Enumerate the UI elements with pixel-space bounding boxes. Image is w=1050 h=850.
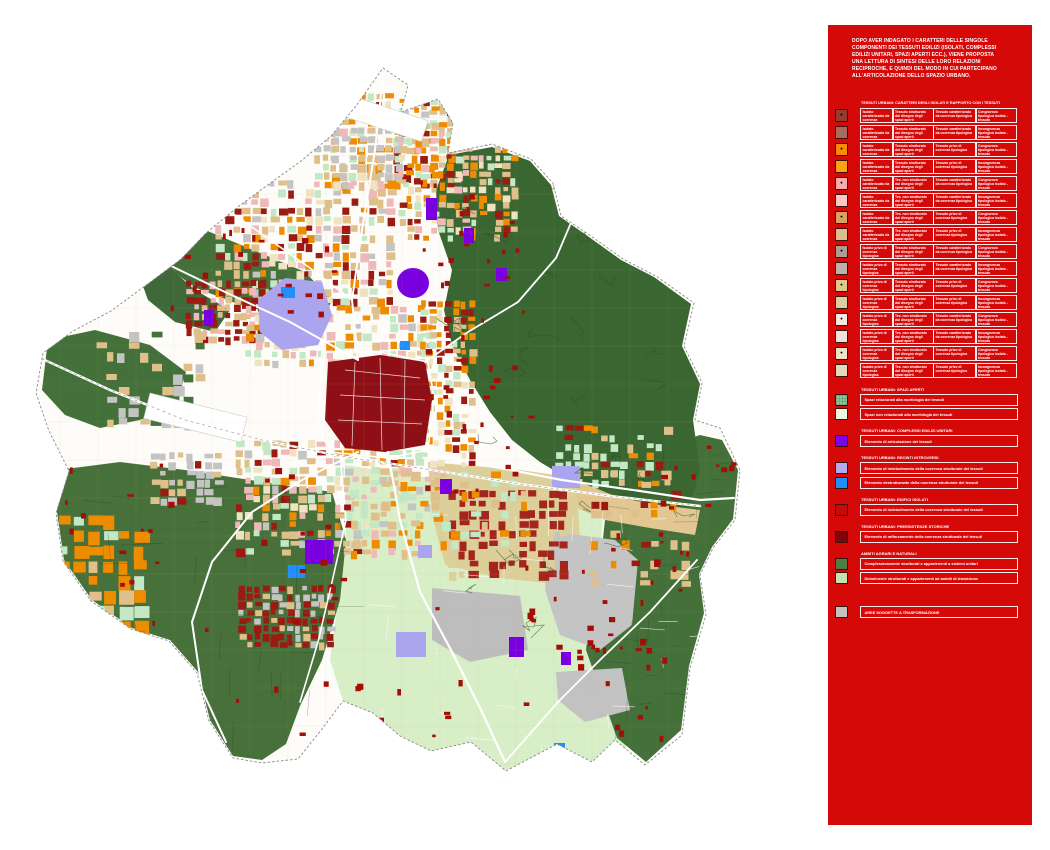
legend-item: Spazi non relazionati alla morfologia de… [828, 408, 1032, 420]
legend-item: Elemento destrutturante della coerenza s… [828, 477, 1032, 489]
legend-table-row: ●Isolato caratterizzato da coerenza tipo… [828, 141, 1032, 158]
color-swatch [835, 435, 848, 447]
legend-table-row: Isolato privo di coerenza tipologicaTes.… [828, 328, 1032, 345]
legend-table: TESSUTI URBANI: CARATTERI DEGLI ISOLATI … [828, 101, 1032, 379]
legend-table-row: Isolato caratterizzato da coerenza tipol… [828, 226, 1032, 243]
legend-table-row: Isolato privo di coerenza tipologicaTess… [828, 294, 1032, 311]
color-swatch [835, 394, 848, 406]
color-swatch [835, 364, 848, 377]
legend-item-label: Elemento di indebolimento della coerenza… [860, 504, 1018, 516]
legend-item: Elemento di indebolimento della coerenza… [828, 462, 1032, 474]
color-swatch [835, 462, 848, 474]
cell-tessuto-disegno: Tessuto strutturato dal disegno degli sp… [893, 142, 934, 158]
legend-table-row: ●Isolato caratterizzato da coerenza tipo… [828, 107, 1032, 124]
legend-item-label: Debolmente strutturati e appartenenti ad… [860, 572, 1018, 584]
cell-tessuto-disegno: Tes. non strutturato dal disegno degli s… [893, 363, 934, 379]
color-swatch: ● [835, 177, 848, 190]
cell-isolato: Isolato privo di coerenza tipologica [860, 329, 893, 345]
cell-isolato: Isolato caratterizzato da coerenza tipol… [860, 210, 893, 226]
legend-section-title: TESSUTI URBANI: RECINTI INTROVERSI [861, 450, 1032, 461]
legend-panel: DOPO AVER INDAGATO I CARATTERI DELLE SIN… [828, 25, 1032, 825]
congruence-dot: ● [840, 147, 843, 152]
cell-tessuto-coerenza: Tessuto privo di coerenza tipologica [933, 227, 976, 243]
legend-table-row: ●Isolato privo di coerenza tipologicaTes… [828, 345, 1032, 362]
legend-table-row: ●Isolato privo di coerenza tipologicaTes… [828, 277, 1032, 294]
legend-item-label: Elemento di articolazione dei tessuti [860, 435, 1018, 447]
cell-rapporto: Incongruenza tipologica isolato - tessut… [976, 193, 1017, 209]
cell-tessuto-disegno: Tes. non strutturato dal disegno degli s… [893, 210, 934, 226]
congruence-dot: ● [840, 317, 843, 322]
cell-isolato: Isolato caratterizzato da coerenza tipol… [860, 193, 893, 209]
legend-table-row: ●Isolato caratterizzato da coerenza tipo… [828, 175, 1032, 192]
cell-tessuto-disegno: Tessuto strutturato dal disegno degli sp… [893, 125, 934, 141]
cell-isolato: Isolato caratterizzato da coerenza tipol… [860, 159, 893, 175]
cell-tessuto-coerenza: Tessuto privo di coerenza tipologica [933, 159, 976, 175]
color-swatch [835, 531, 848, 543]
cell-tessuto-disegno: Tessuto strutturato dal disegno degli sp… [893, 108, 934, 124]
cell-rapporto: Incongruenza tipologica isolato - tessut… [976, 363, 1017, 379]
legend-item: Elemento di indebolimento della coerenza… [828, 504, 1032, 516]
cell-isolato: Isolato privo di coerenza tipologica [860, 295, 893, 311]
cell-tessuto-disegno: Tes. non strutturato dal disegno degli s… [893, 176, 934, 192]
legend-table-row: Isolato privo di coerenza tipologicaTess… [828, 260, 1032, 277]
cell-tessuto-coerenza: Tessuto privo di coerenza tipologica [933, 142, 976, 158]
legend-item-aree-trasformazione: AREE SOGGETTE A TRASFORMAZIONE [828, 606, 1032, 618]
cell-isolato: Isolato caratterizzato da coerenza tipol… [860, 142, 893, 158]
cell-tessuto-disegno: Tessuto strutturato dal disegno degli sp… [893, 295, 934, 311]
color-swatch [835, 330, 848, 343]
color-swatch: ● [835, 109, 848, 122]
cell-tessuto-disegno: Tes. non strutturato dal disegno degli s… [893, 312, 934, 328]
legend-sections: TESSUTI URBANI: SPAZI APERTISpazi relazi… [828, 381, 1032, 621]
legend-item: Spazi relazionati alla morfologia dei te… [828, 394, 1032, 406]
cell-rapporto: Congruenza tipologica isolato - tessuto [976, 210, 1017, 226]
color-swatch: ● [835, 211, 848, 224]
legend-table-title: TESSUTI URBANI: CARATTERI DEGLI ISOLATI … [861, 101, 1032, 105]
color-swatch [835, 194, 848, 207]
cell-tessuto-disegno: Tessuto strutturato dal disegno degli sp… [893, 244, 934, 260]
legend-table-row: Isolato caratterizzato da coerenza tipol… [828, 158, 1032, 175]
cell-tessuto-coerenza: Tessuto privo di coerenza tipologica [933, 295, 976, 311]
color-swatch [835, 160, 848, 173]
legend-table-row: Isolato caratterizzato da coerenza tipol… [828, 124, 1032, 141]
legend-item: Complessivamente strutturati e appartene… [828, 558, 1032, 570]
cell-rapporto: Congruenza tipologica isolato - tessuto [976, 312, 1017, 328]
legend-section-title: AMBITI AGRARI E NATURALI [861, 545, 1032, 556]
color-swatch: ● [835, 143, 848, 156]
cell-tessuto-coerenza: Tessuto caratterizzato da coerenza tipol… [933, 176, 976, 192]
cell-isolato: Isolato caratterizzato da coerenza tipol… [860, 108, 893, 124]
legend-table-row: Isolato caratterizzato da coerenza tipol… [828, 192, 1032, 209]
legend-section-title: TESSUTI URBANI: COMPLESSI EDILIZI UNITAR… [861, 423, 1032, 434]
color-swatch [835, 408, 848, 420]
legend-item-label: Elemento destrutturante della coerenza s… [860, 477, 1018, 489]
cell-isolato: Isolato privo di coerenza tipologica [860, 363, 893, 379]
cell-tessuto-coerenza: Tessuto caratterizzato da coerenza tipol… [933, 244, 976, 260]
cell-rapporto: Congruenza tipologica isolato - tessuto [976, 278, 1017, 294]
color-swatch [835, 228, 848, 241]
cell-tessuto-disegno: Tessuto strutturato dal disegno degli sp… [893, 278, 934, 294]
legend-item-label: Elemento di indebolimento della coerenza… [860, 462, 1018, 474]
cell-isolato: Isolato privo di coerenza tipologica [860, 261, 893, 277]
cell-rapporto: Incongruenza tipologica isolato - tessut… [976, 261, 1017, 277]
cell-tessuto-disegno: Tes. non strutturato dal disegno degli s… [893, 346, 934, 362]
cell-tessuto-coerenza: Tessuto privo di coerenza tipologica [933, 278, 976, 294]
color-swatch: ● [835, 347, 848, 360]
cell-tessuto-coerenza: Tessuto privo di coerenza tipologica [933, 363, 976, 379]
legend-item: Elemento di rafforzamento della coerenza… [828, 531, 1032, 543]
color-swatch [835, 606, 848, 618]
cell-tessuto-coerenza: Tessuto privo di coerenza tipologica [933, 346, 976, 362]
cell-rapporto: Incongruenza tipologica isolato - tessut… [976, 227, 1017, 243]
cell-tessuto-coerenza: Tessuto caratterizzato da coerenza tipol… [933, 329, 976, 345]
congruence-dot: ● [840, 113, 843, 118]
legend-table-row: ●Isolato privo di coerenza tipologicaTes… [828, 311, 1032, 328]
cell-tessuto-disegno: Tes. non strutturato dal disegno degli s… [893, 193, 934, 209]
color-swatch [835, 126, 848, 139]
congruence-dot: ● [840, 215, 843, 220]
congruence-dot: ● [840, 249, 843, 254]
cell-isolato: Isolato privo di coerenza tipologica [860, 244, 893, 260]
cell-rapporto: Congruenza tipologica isolato - tessuto [976, 142, 1017, 158]
cell-isolato: Isolato caratterizzato da coerenza tipol… [860, 125, 893, 141]
cell-rapporto: Congruenza tipologica isolato - tessuto [976, 176, 1017, 192]
color-swatch: ● [835, 245, 848, 258]
color-swatch [835, 296, 848, 309]
cell-isolato: Isolato privo di coerenza tipologica [860, 312, 893, 328]
legend-item-label: Elemento di rafforzamento della coerenza… [860, 531, 1018, 543]
cell-isolato: Isolato caratterizzato da coerenza tipol… [860, 227, 893, 243]
legend-table-row: ●Isolato caratterizzato da coerenza tipo… [828, 209, 1032, 226]
city-map [0, 0, 830, 850]
cell-tessuto-coerenza: Tessuto caratterizzato da coerenza tipol… [933, 312, 976, 328]
congruence-dot: ● [840, 283, 843, 288]
cell-tessuto-coerenza: Tessuto caratterizzato da coerenza tipol… [933, 125, 976, 141]
cell-rapporto: Incongruenza tipologica isolato - tessut… [976, 125, 1017, 141]
legend-item-label: Spazi non relazionati alla morfologia de… [860, 408, 1018, 420]
legend-item: Elemento di articolazione dei tessuti [828, 435, 1032, 447]
color-swatch [835, 477, 848, 489]
cell-rapporto: Congruenza tipologica isolato - tessuto [976, 244, 1017, 260]
cell-rapporto: Congruenza tipologica isolato - tessuto [976, 108, 1017, 124]
cell-tessuto-disegno: Tes. non strutturato dal disegno degli s… [893, 227, 934, 243]
congruence-dot: ● [840, 351, 843, 356]
legend-table-row: ●Isolato privo di coerenza tipologicaTes… [828, 243, 1032, 260]
legend-item-label: Spazi relazionati alla morfologia dei te… [860, 394, 1018, 406]
cell-tessuto-coerenza: Tessuto privo di coerenza tipologica [933, 210, 976, 226]
legend-intro-text: DOPO AVER INDAGATO I CARATTERI DELLE SIN… [852, 38, 1006, 80]
cell-tessuto-coerenza: Tessuto caratterizzato da coerenza tipol… [933, 108, 976, 124]
cell-rapporto: Congruenza tipologica isolato - tessuto [976, 346, 1017, 362]
legend-section-title: TESSUTI URBANI: EDIFICI ISOLATI [861, 491, 1032, 502]
cell-isolato: Isolato caratterizzato da coerenza tipol… [860, 176, 893, 192]
cell-isolato: Isolato privo di coerenza tipologica [860, 346, 893, 362]
legend-item-label: Complessivamente strutturati e appartene… [860, 558, 1018, 570]
cell-tessuto-disegno: Tessuto strutturato dal disegno degli sp… [893, 159, 934, 175]
cell-tessuto-disegno: Tessuto strutturato dal disegno degli sp… [893, 261, 934, 277]
cell-tessuto-disegno: Tes. non strutturato dal disegno degli s… [893, 329, 934, 345]
color-swatch [835, 504, 848, 516]
color-swatch [835, 572, 848, 584]
cell-rapporto: Incongruenza tipologica isolato - tessut… [976, 295, 1017, 311]
legend-item-label: AREE SOGGETTE A TRASFORMAZIONE [860, 606, 1018, 618]
cell-rapporto: Incongruenza tipologica isolato - tessut… [976, 159, 1017, 175]
color-swatch [835, 558, 848, 570]
congruence-dot: ● [840, 181, 843, 186]
color-swatch: ● [835, 313, 848, 326]
legend-item: Debolmente strutturati e appartenenti ad… [828, 572, 1032, 584]
grid-pattern [836, 395, 847, 405]
cell-tessuto-coerenza: Tessuto caratterizzato da coerenza tipol… [933, 193, 976, 209]
legend-table-row: Isolato privo di coerenza tipologicaTes.… [828, 362, 1032, 379]
cell-rapporto: Incongruenza tipologica isolato - tessut… [976, 329, 1017, 345]
color-swatch [835, 262, 848, 275]
map-layers [0, 0, 830, 850]
legend-section-title: TESSUTI URBANI: PREESISTENZE STORICHE [861, 518, 1032, 529]
color-swatch: ● [835, 279, 848, 292]
legend-section-title: TESSUTI URBANI: SPAZI APERTI [861, 381, 1032, 392]
cell-tessuto-coerenza: Tessuto caratterizzato da coerenza tipol… [933, 261, 976, 277]
cell-isolato: Isolato privo di coerenza tipologica [860, 278, 893, 294]
